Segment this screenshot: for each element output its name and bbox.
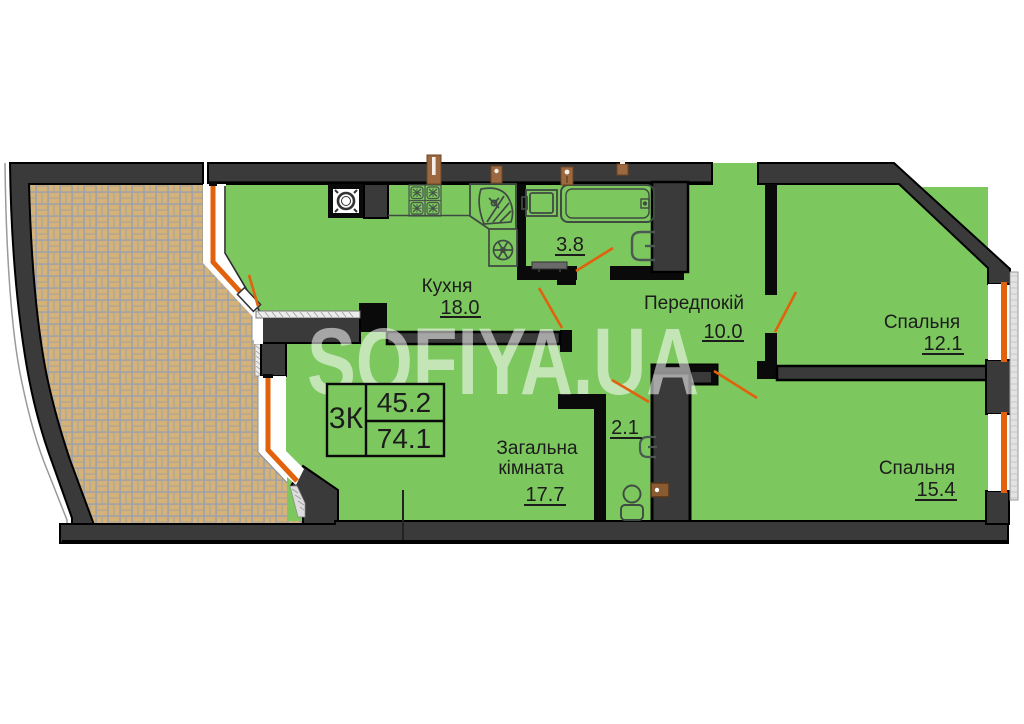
svg-text:Загальна: Загальна <box>496 438 578 459</box>
svg-text:3К: 3К <box>329 402 364 435</box>
svg-text:кімната: кімната <box>498 458 564 479</box>
svg-text:Кухня: Кухня <box>422 276 473 297</box>
svg-text:74.1: 74.1 <box>377 423 432 454</box>
svg-text:12.1: 12.1 <box>924 333 963 355</box>
svg-text:15.4: 15.4 <box>917 479 956 501</box>
svg-text:45.2: 45.2 <box>377 387 432 418</box>
svg-text:10.0: 10.0 <box>704 321 743 343</box>
svg-text:Спальня: Спальня <box>884 312 960 333</box>
svg-text:Передпокій: Передпокій <box>644 293 744 314</box>
svg-text:3.8: 3.8 <box>556 234 584 256</box>
svg-text:17.7: 17.7 <box>526 484 565 506</box>
svg-text:2.1: 2.1 <box>611 417 639 439</box>
svg-text:Спальня: Спальня <box>879 458 955 479</box>
svg-text:18.0: 18.0 <box>441 297 480 319</box>
